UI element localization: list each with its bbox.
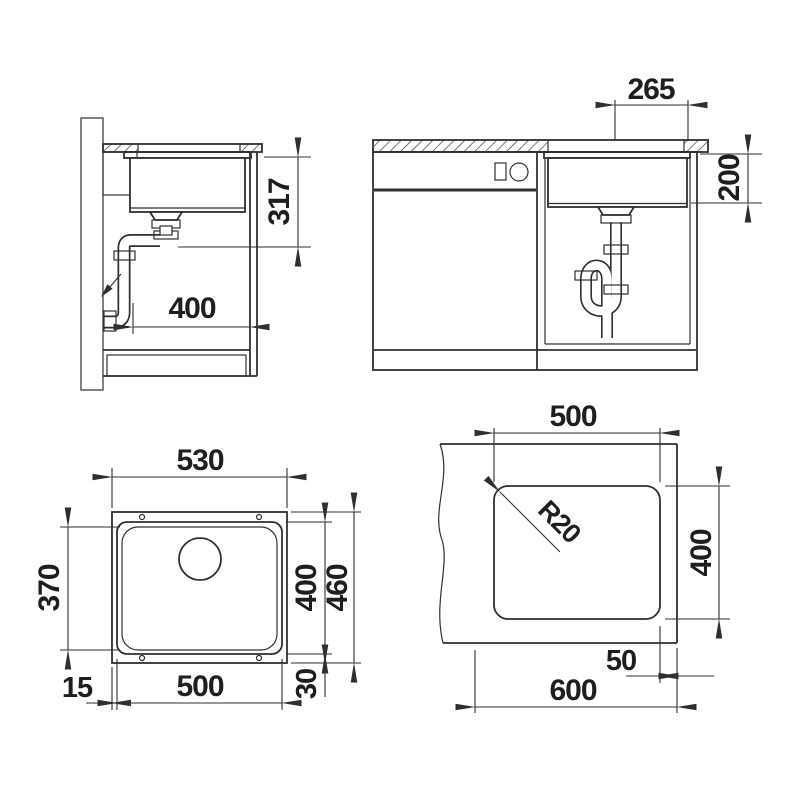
dim-label-265: 265 xyxy=(627,73,674,106)
dim-30: 30 xyxy=(291,664,325,699)
worktop-outline xyxy=(439,444,677,643)
dim-500-cutout: 500 xyxy=(494,400,660,482)
drain-hole xyxy=(179,538,221,580)
dim-label-530: 530 xyxy=(176,444,223,477)
break-line xyxy=(439,444,445,643)
dim-label-50: 50 xyxy=(606,645,636,677)
dim-530: 530 xyxy=(112,444,287,508)
dim-label-400-cutout: 400 xyxy=(685,529,718,576)
worktop-hatch-right xyxy=(240,144,262,152)
mounting-hole xyxy=(140,515,145,520)
mounting-hole xyxy=(257,656,262,661)
wall-hatch xyxy=(81,118,103,390)
dim-label-500-cutout: 500 xyxy=(549,400,596,433)
dim-r20: R20 xyxy=(500,492,586,552)
dim-label-500-top: 500 xyxy=(176,670,223,703)
view-side-section: 317 400 xyxy=(81,118,311,390)
dim-200: 200 xyxy=(691,154,762,203)
technical-drawing-page: 317 400 xyxy=(0,0,800,800)
dim-50: 50 xyxy=(606,626,714,713)
dim-15: 15 xyxy=(62,659,117,710)
dim-label-600: 600 xyxy=(549,674,596,707)
view-front: 265 200 xyxy=(373,73,762,370)
dim-label-r20: R20 xyxy=(532,495,586,549)
drain-strainer-front xyxy=(598,207,634,223)
dim-label-400-top: 400 xyxy=(290,564,323,611)
bowl-rim xyxy=(117,522,282,654)
dim-265: 265 xyxy=(615,73,688,140)
drain-pipe xyxy=(104,241,160,323)
worktop-hatch-left xyxy=(103,144,138,152)
dim-370: 370 xyxy=(33,527,120,650)
dim-label-317: 317 xyxy=(263,178,296,225)
sink-bowl-section xyxy=(130,158,245,212)
technical-drawing: 317 400 xyxy=(0,0,800,800)
dim-label-460: 460 xyxy=(321,564,354,611)
dim-400-side: 400 xyxy=(133,292,250,334)
sink-outer-edge xyxy=(112,512,287,663)
dim-label-400-side: 400 xyxy=(168,292,215,325)
mounting-hole xyxy=(140,656,145,661)
dim-label-370: 370 xyxy=(33,564,66,611)
sink-bowl-front xyxy=(548,158,687,207)
dim-label-15: 15 xyxy=(62,672,93,704)
view-top: 530 370 400 460 30 xyxy=(33,444,361,710)
cutout-outline xyxy=(494,486,660,619)
dim-label-30: 30 xyxy=(291,669,323,699)
bowl-floor xyxy=(122,527,277,650)
dim-600: 600 xyxy=(475,650,677,713)
dim-label-200: 200 xyxy=(713,154,746,201)
dim-400-cutout: 400 xyxy=(665,486,730,619)
view-cutout: 500 R20 400 50 600 xyxy=(439,400,730,713)
worktop-hatch-left xyxy=(374,140,548,152)
worktop-hatch-right xyxy=(684,140,708,152)
handle-symbol-circle-icon xyxy=(510,163,528,181)
mounting-hole xyxy=(257,515,262,520)
handle-symbol-rect-icon xyxy=(495,163,506,180)
dim-500-top: 500 xyxy=(117,659,282,710)
